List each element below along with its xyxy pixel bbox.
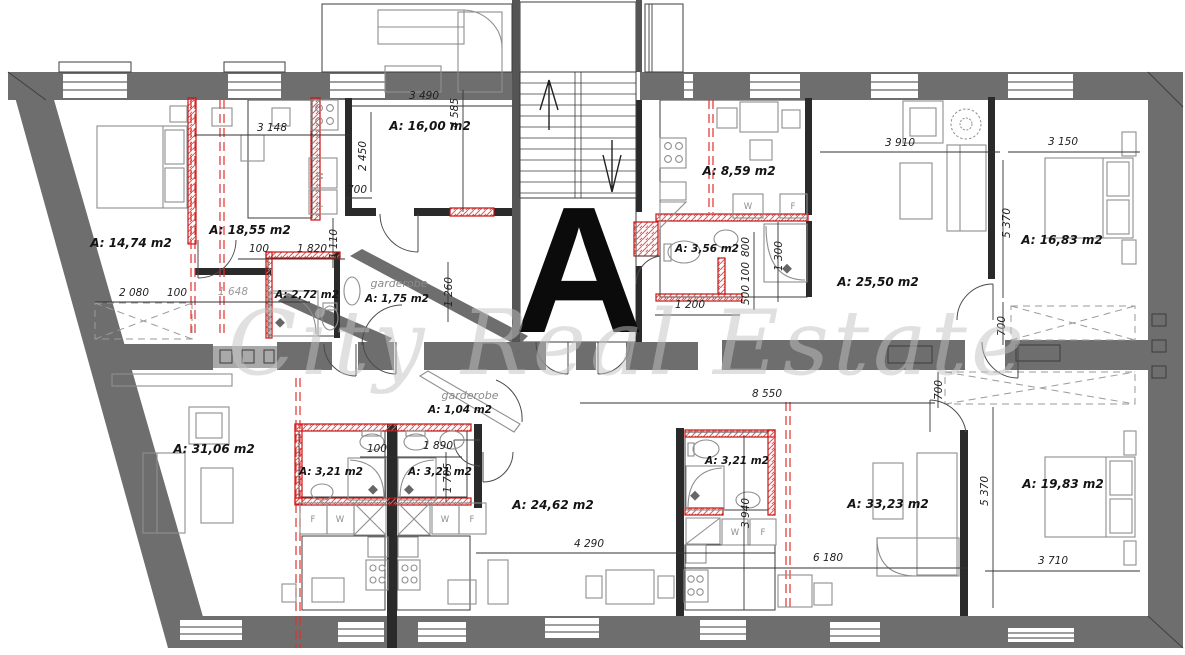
dim-label: 3 710: [1038, 555, 1068, 567]
fridge-box: F: [750, 519, 776, 545]
room-area-label: A: 16,83 m2: [1020, 233, 1102, 247]
closet-label: garderobe: [371, 277, 428, 290]
window: [338, 622, 384, 642]
room-area-label: A: 24,62 m2: [511, 498, 593, 512]
stove-icon: [398, 560, 420, 590]
kitchen-floor-bottom-middle: [397, 536, 470, 610]
dim-label: 100: [740, 262, 752, 282]
window: [1008, 74, 1073, 98]
corner-cabinet: [398, 503, 430, 535]
shower: [764, 224, 807, 282]
room-area-label: A: 19,83 m2: [1021, 477, 1103, 491]
washer-box: W: [327, 503, 354, 534]
dim-label: 3 150: [1048, 136, 1078, 148]
corner-cabinet: [686, 518, 720, 544]
washer-label: W: [441, 515, 450, 525]
counter-hatch: [398, 537, 418, 557]
fridge-label: F: [761, 528, 766, 538]
plant-icon: [951, 109, 981, 139]
dim-label: 100: [249, 243, 269, 255]
dim-label: 700: [347, 184, 367, 196]
washer-label: W: [744, 202, 753, 212]
dim-label: 1 110: [328, 229, 340, 259]
shower: [398, 458, 436, 500]
kitchen-floor-top-left: [248, 100, 312, 218]
bath-floor-bottom-right: [685, 432, 768, 510]
window: [545, 618, 599, 638]
washer-label: W: [336, 515, 345, 525]
dim-label: 100: [367, 443, 387, 455]
watermark-text: City Real Estate: [228, 291, 1028, 396]
window: [700, 620, 746, 640]
washer-label: W: [731, 528, 740, 538]
coffee-table: [900, 163, 932, 219]
fridge-label: F: [316, 202, 326, 207]
coffee-table: [201, 468, 233, 523]
dim-label: 1 300: [773, 241, 785, 271]
dining-set: [717, 102, 800, 160]
dim-label: 800: [740, 237, 752, 257]
dim-label: 3 490: [409, 90, 439, 102]
kitchen-floor-bottom-right: [685, 545, 775, 610]
corner-cabinet: [354, 503, 386, 535]
window: [180, 620, 242, 640]
window: [59, 62, 131, 98]
room-area-label: A: 31,06 m2: [172, 442, 254, 456]
dim-label: 5 370: [1001, 208, 1013, 238]
armchair: [189, 407, 229, 444]
dim-label: 100: [167, 287, 187, 299]
dim-label: 3 940: [740, 498, 752, 528]
counter-hatch: [686, 545, 706, 563]
bed: [97, 106, 187, 208]
dining-set: [586, 570, 674, 604]
stove-icon: [684, 570, 708, 602]
closet-area-label: A: 1,04 m2: [427, 404, 492, 416]
floor-plan-page: W F W: [0, 0, 1185, 655]
cupboard: [488, 560, 508, 604]
nightstand: [170, 106, 187, 122]
washer-label: W: [316, 171, 326, 180]
room-area-label: A: 3,56 m2: [674, 243, 739, 255]
washer-box: W: [432, 503, 459, 534]
opening-x: [1011, 306, 1135, 340]
dim-label: 5 370: [979, 476, 991, 506]
window: [830, 622, 880, 642]
stove-icon: [660, 138, 686, 168]
dim-label: 1 820: [297, 243, 327, 255]
room-area-label: A: 16,00 m2: [388, 119, 470, 133]
fridge-label: F: [311, 515, 316, 525]
window: [750, 74, 800, 98]
right-wall: [1148, 72, 1183, 648]
window: [418, 622, 466, 642]
fridge-box: F: [300, 503, 327, 534]
room-area-label: A: 33,23 m2: [846, 497, 928, 511]
stair-landing-tiles: [520, 2, 636, 72]
window: [330, 74, 385, 98]
room-area-label: A: 14,74 m2: [89, 236, 171, 250]
room-area-label: A: 25,50 m2: [836, 275, 918, 289]
door: [930, 400, 966, 432]
dim-label: 1 890: [423, 440, 453, 452]
window: [871, 74, 918, 98]
dim-label: 3 148: [257, 122, 287, 134]
dining-set: [448, 580, 476, 604]
nightstand: [1122, 240, 1136, 264]
fridge-label: F: [791, 202, 796, 212]
dim-label: 4 290: [574, 538, 604, 550]
sofa-corner: [464, 10, 502, 48]
floor-plan-canvas: W F W: [0, 0, 1185, 655]
door: [483, 452, 513, 482]
dining-set: [282, 578, 344, 602]
sofa: [947, 145, 986, 231]
dim-label: 2 450: [357, 141, 369, 171]
window: [224, 62, 285, 98]
counter-hatch: [660, 182, 686, 200]
room-area-label: A: 3,21 m2: [704, 455, 769, 467]
nightstand: [1124, 431, 1136, 455]
dim-label: 6 180: [813, 552, 843, 564]
shower: [348, 458, 386, 500]
fridge-label: F: [470, 515, 475, 525]
nightstand: [1124, 541, 1136, 565]
shower: [686, 466, 724, 510]
room-area-label: A: 3,21 m2: [407, 466, 472, 478]
dim-label: 2 080: [119, 287, 149, 299]
dim-label: 3 910: [885, 137, 915, 149]
room-area-label: A: 3,21 m2: [298, 466, 363, 478]
entry-wing: [645, 4, 683, 72]
room-area-label: A: 18,55 m2: [208, 223, 290, 237]
door: [380, 214, 418, 252]
window: [1008, 628, 1074, 642]
bed: [1045, 431, 1136, 565]
corner-sofa: [873, 453, 959, 576]
room-area-label: A: 8,59 m2: [701, 164, 775, 178]
